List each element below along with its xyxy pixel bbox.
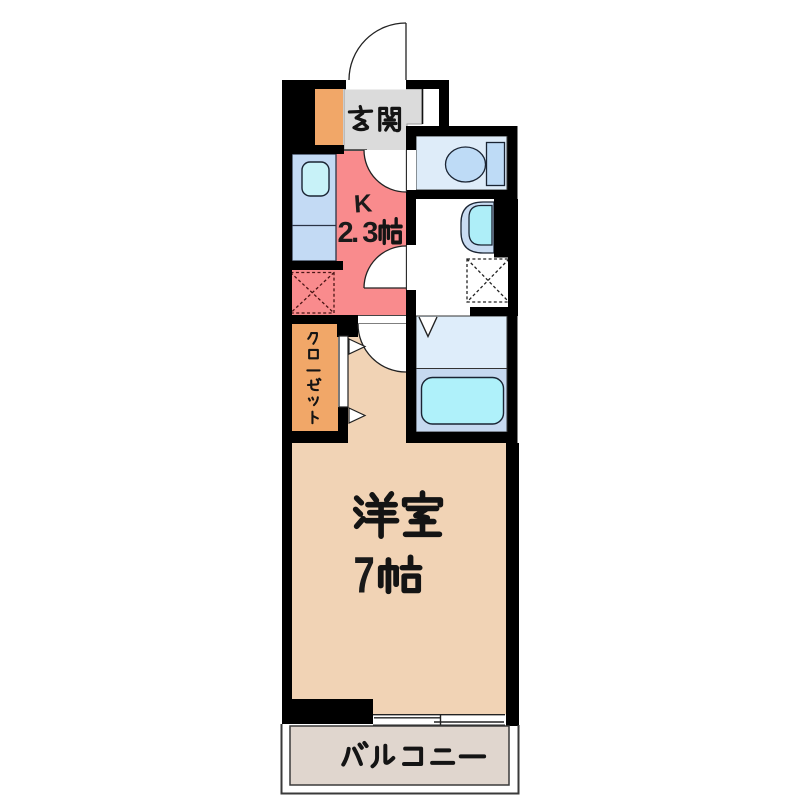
svg-text:7: 7 (354, 546, 375, 604)
svg-text:K: K (353, 189, 373, 218)
svg-text:2. 3: 2. 3 (338, 217, 379, 249)
